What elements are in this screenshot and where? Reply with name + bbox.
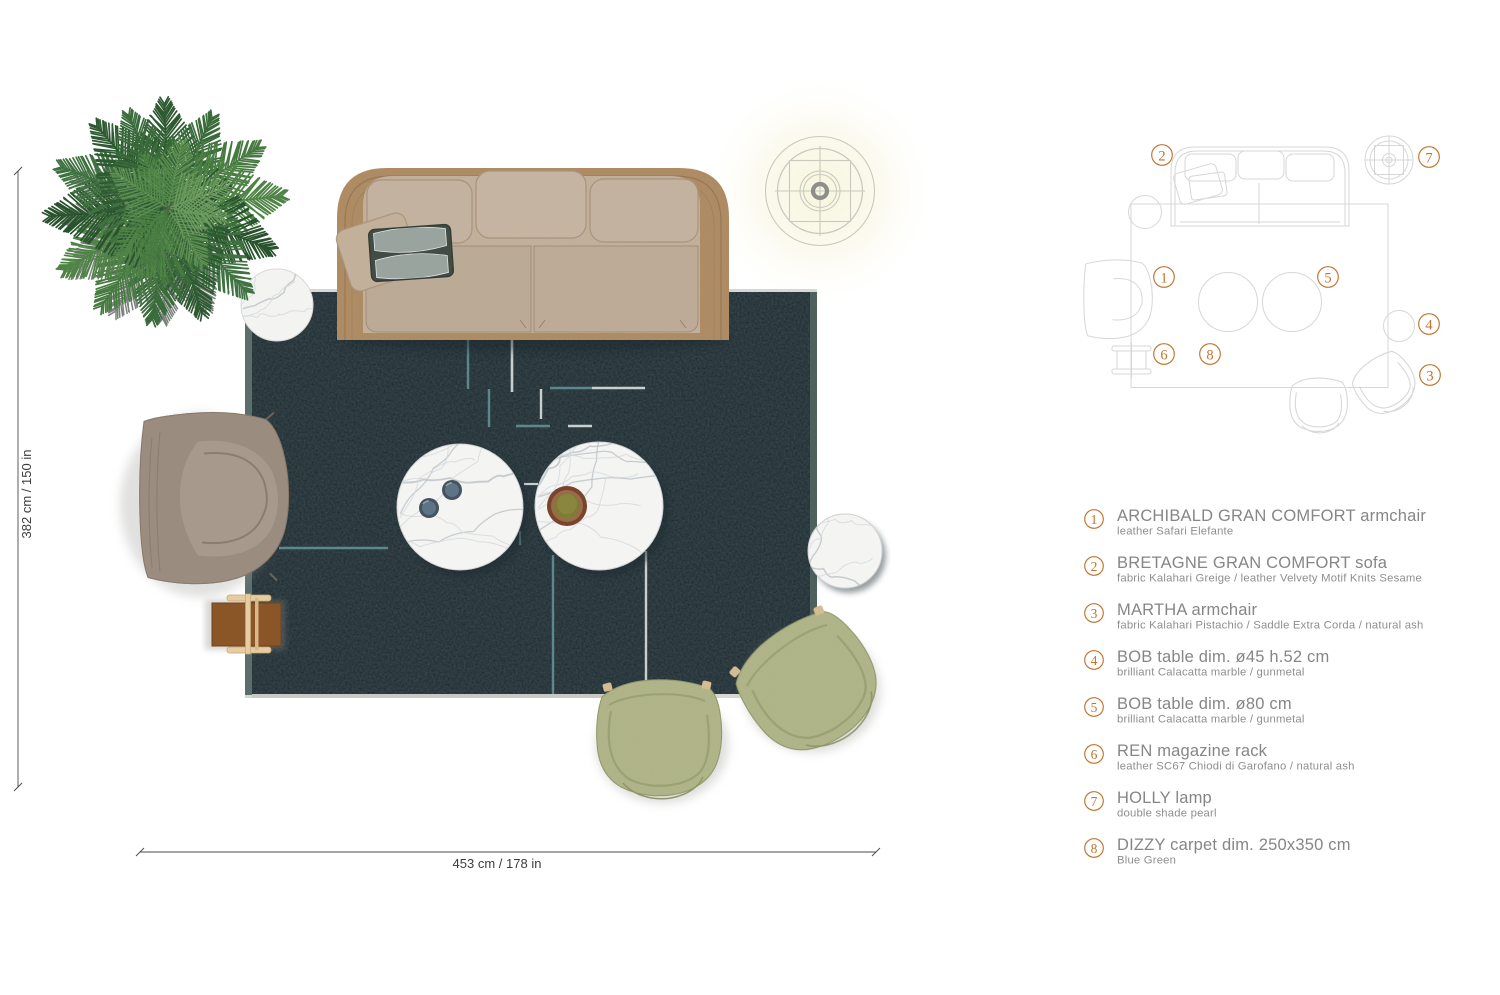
svg-text:2: 2 (1091, 559, 1098, 574)
svg-text:6: 6 (1091, 747, 1098, 762)
svg-text:BRETAGNE GRAN COMFORT sofa: BRETAGNE GRAN COMFORT sofa (1117, 554, 1388, 572)
svg-text:8: 8 (1206, 348, 1213, 364)
svg-text:3: 3 (1091, 606, 1098, 621)
svg-text:2: 2 (1158, 149, 1165, 165)
svg-text:REN magazine rack: REN magazine rack (1117, 742, 1268, 760)
svg-text:7: 7 (1091, 794, 1098, 809)
svg-text:Blue Green: Blue Green (1117, 855, 1176, 867)
svg-text:double shade pearl: double shade pearl (1117, 808, 1217, 820)
svg-text:3: 3 (1426, 369, 1433, 385)
svg-text:leather Safari Elefante: leather Safari Elefante (1117, 526, 1233, 538)
svg-text:fabric Kalahari Greige / leath: fabric Kalahari Greige / leather Velvety… (1117, 573, 1422, 585)
svg-text:5: 5 (1324, 271, 1331, 287)
svg-text:HOLLY lamp: HOLLY lamp (1117, 789, 1212, 807)
svg-text:MARTHA armchair: MARTHA armchair (1117, 601, 1258, 619)
svg-text:BOB table dim. ø80 cm: BOB table dim. ø80 cm (1117, 695, 1292, 713)
svg-text:4: 4 (1425, 318, 1433, 334)
svg-text:leather SC67 Chiodi di Garofan: leather SC67 Chiodi di Garofano / natura… (1117, 761, 1355, 773)
svg-text:5: 5 (1091, 700, 1098, 715)
svg-text:1: 1 (1160, 271, 1167, 287)
svg-text:6: 6 (1160, 348, 1167, 364)
svg-text:1: 1 (1091, 512, 1098, 527)
svg-text:4: 4 (1091, 653, 1098, 668)
svg-text:brilliant Calacatta marble / g: brilliant Calacatta marble / gunmetal (1117, 714, 1305, 726)
svg-text:7: 7 (1425, 151, 1432, 167)
svg-text:382 cm / 150 in: 382 cm / 150 in (19, 450, 34, 539)
svg-text:BOB table dim. ø45 h.52 cm: BOB table dim. ø45 h.52 cm (1117, 648, 1329, 666)
svg-text:brilliant Calacatta marble / g: brilliant Calacatta marble / gunmetal (1117, 667, 1305, 679)
svg-text:DIZZY carpet dim. 250x350 cm: DIZZY carpet dim. 250x350 cm (1117, 836, 1351, 854)
svg-text:fabric Kalahari Pistachio / Sa: fabric Kalahari Pistachio / Saddle Extra… (1117, 620, 1424, 632)
svg-text:453 cm / 178 in: 453 cm / 178 in (453, 856, 542, 871)
svg-text:ARCHIBALD GRAN COMFORT armchai: ARCHIBALD GRAN COMFORT armchair (1117, 507, 1426, 525)
svg-text:8: 8 (1091, 841, 1098, 856)
